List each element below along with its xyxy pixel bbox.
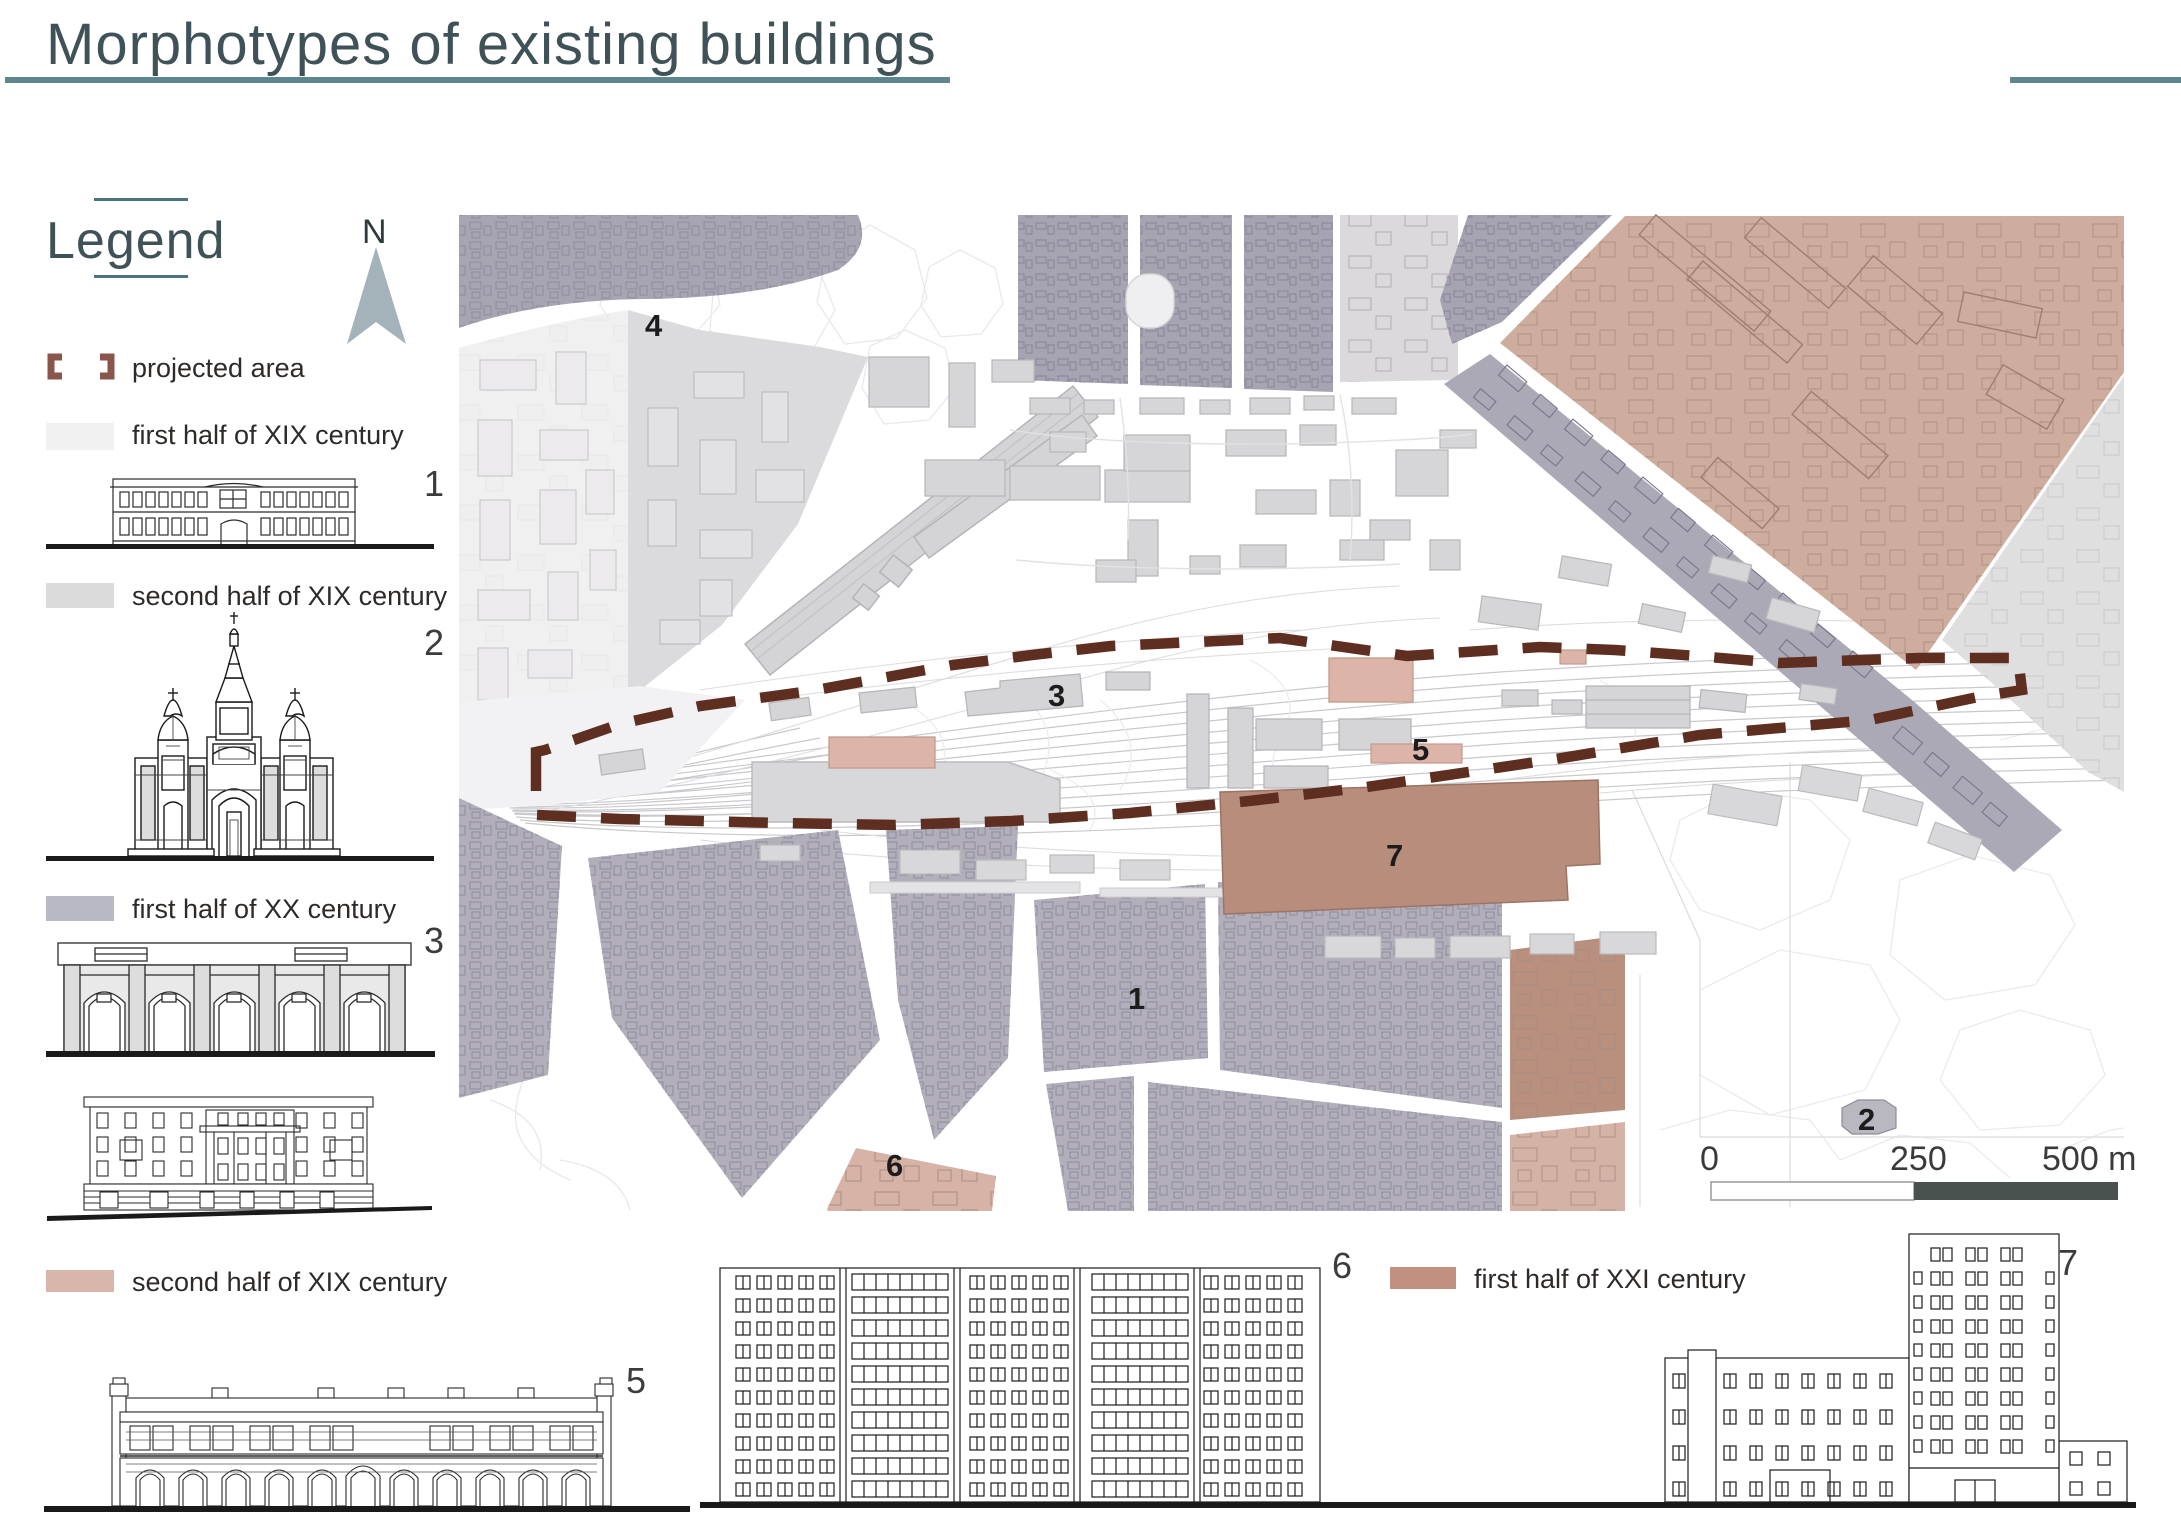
svg-text:250: 250 (1890, 1140, 1947, 1178)
svg-text:5: 5 (626, 1360, 646, 1401)
svg-text:2: 2 (1858, 1102, 1875, 1137)
svg-text:1: 1 (424, 463, 444, 504)
svg-text:4: 4 (645, 308, 663, 343)
svg-text:0: 0 (1700, 1140, 1719, 1178)
svg-text:6: 6 (886, 1148, 903, 1183)
svg-text:7: 7 (1386, 838, 1403, 873)
svg-text:6: 6 (1332, 1245, 1352, 1286)
svg-text:second half of XIX century: second half of XIX century (132, 581, 448, 611)
svg-text:first half of XX century: first half of XX century (132, 894, 397, 924)
svg-text:2: 2 (424, 622, 444, 663)
svg-text:first half of XIX century: first half of XIX century (132, 420, 404, 450)
svg-text:projected area: projected area (132, 353, 306, 383)
svg-text:N: N (362, 213, 387, 251)
svg-text:500 m: 500 m (2042, 1140, 2137, 1178)
svg-text:1: 1 (1128, 981, 1145, 1016)
svg-text:7: 7 (2058, 1242, 2078, 1283)
svg-text:Legend: Legend (46, 212, 226, 270)
svg-text:3: 3 (1048, 678, 1065, 713)
svg-text:first half of XXI century: first half of XXI century (1474, 1264, 1746, 1294)
svg-text:5: 5 (1412, 732, 1429, 767)
svg-text:second half of XIX century: second half of XIX century (132, 1267, 448, 1297)
svg-text:Morphotypes of existing buildi: Morphotypes of existing buildings (46, 12, 937, 77)
svg-text:3: 3 (424, 920, 444, 961)
